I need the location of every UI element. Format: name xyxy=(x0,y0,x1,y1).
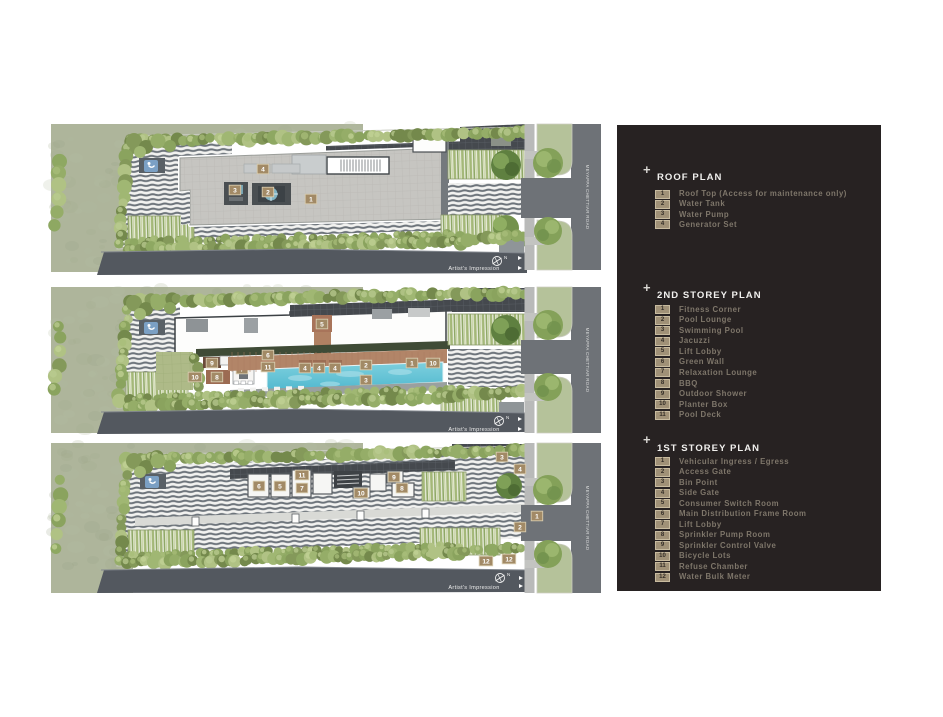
svg-text:8: 8 xyxy=(215,374,219,381)
svg-text:12: 12 xyxy=(505,556,513,563)
svg-text:12: 12 xyxy=(482,558,490,565)
svg-text:2: 2 xyxy=(518,524,522,531)
svg-text:1: 1 xyxy=(535,513,539,520)
svg-text:MEYAPPA CHETTIAR ROAD: MEYAPPA CHETTIAR ROAD xyxy=(585,328,590,393)
svg-text:3: 3 xyxy=(500,454,504,461)
svg-text:6: 6 xyxy=(257,483,261,490)
svg-text:1: 1 xyxy=(309,196,313,203)
svg-text:1: 1 xyxy=(410,360,414,367)
svg-text:Artist's Impression: Artist's Impression xyxy=(448,585,499,591)
svg-text:4: 4 xyxy=(333,365,337,372)
svg-text:2: 2 xyxy=(364,362,368,369)
svg-text:4: 4 xyxy=(518,466,522,473)
svg-text:3: 3 xyxy=(233,187,237,194)
svg-text:7: 7 xyxy=(300,485,304,492)
svg-text:Artist's Impression: Artist's Impression xyxy=(448,427,499,433)
svg-text:N: N xyxy=(506,415,509,420)
svg-text:N: N xyxy=(507,572,510,577)
svg-text:5: 5 xyxy=(320,321,324,328)
svg-text:8: 8 xyxy=(400,485,404,492)
svg-text:3: 3 xyxy=(364,377,368,384)
svg-text:4: 4 xyxy=(317,365,321,372)
svg-text:N: N xyxy=(504,255,507,260)
svg-text:4: 4 xyxy=(261,166,265,173)
svg-text:6: 6 xyxy=(266,352,270,359)
svg-text:9: 9 xyxy=(210,360,214,367)
svg-text:10: 10 xyxy=(357,490,365,497)
svg-text:MEYAPPA CHETTIAR ROAD: MEYAPPA CHETTIAR ROAD xyxy=(585,486,590,551)
svg-text:10: 10 xyxy=(429,360,437,367)
svg-text:11: 11 xyxy=(265,364,272,371)
svg-text:Artist's Impression: Artist's Impression xyxy=(448,266,499,272)
svg-text:11: 11 xyxy=(299,472,306,479)
svg-text:MEYAPPA CHETTIAR ROAD: MEYAPPA CHETTIAR ROAD xyxy=(585,165,590,230)
svg-text:4: 4 xyxy=(303,365,307,372)
svg-text:5: 5 xyxy=(278,483,282,490)
svg-text:9: 9 xyxy=(392,474,396,481)
svg-text:2: 2 xyxy=(266,189,270,196)
svg-text:10: 10 xyxy=(191,374,199,381)
